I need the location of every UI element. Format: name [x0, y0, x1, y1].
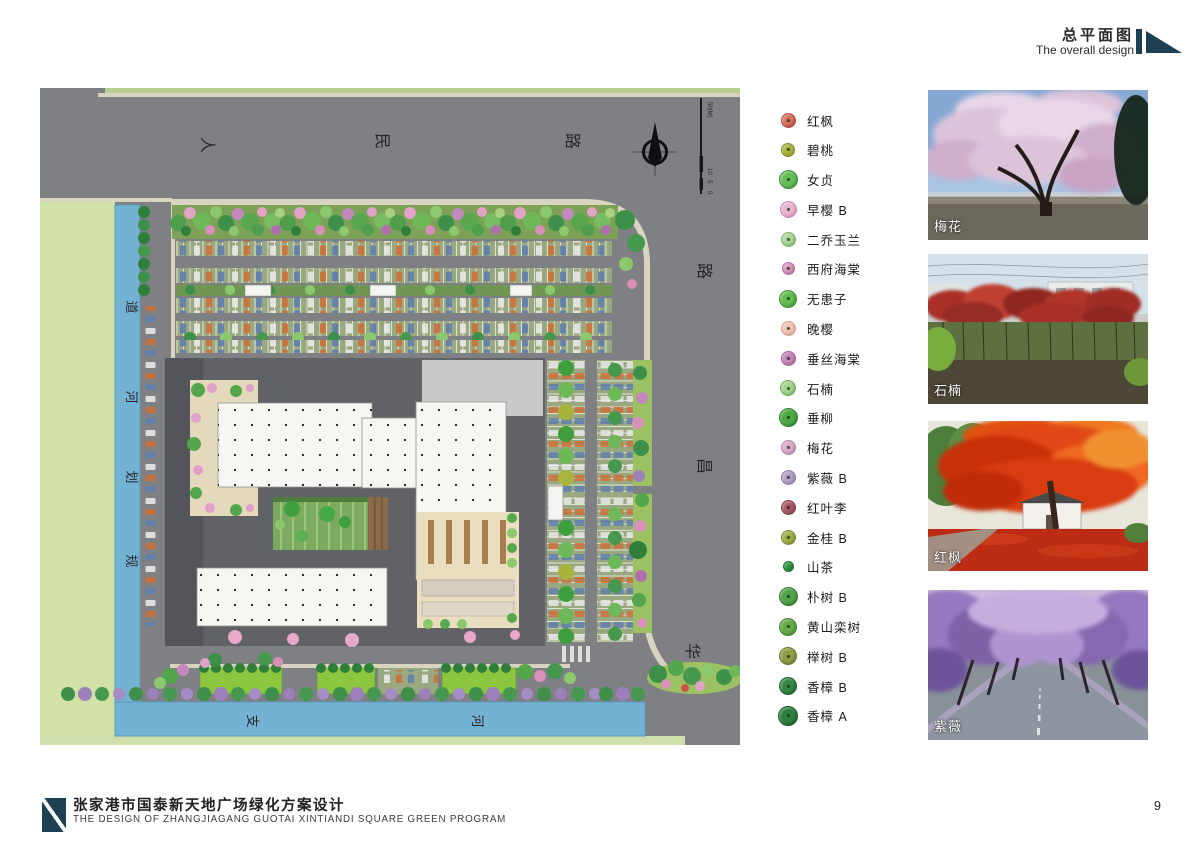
legend-item: 朴树 B [772, 586, 928, 608]
photo-label: 红枫 [934, 547, 962, 566]
legend-swatch-dot [787, 714, 790, 717]
legend-label: 朴树 B [807, 587, 848, 606]
legend-label: 早樱 B [807, 200, 848, 219]
legend-item: 晚樱 [772, 318, 928, 340]
legend-label: 碧桃 [807, 140, 834, 159]
footer-logo-slash [42, 798, 66, 832]
legend-label: 二乔玉兰 [807, 230, 861, 249]
parking-east [547, 360, 658, 644]
project-title-cn: 张家港市国泰新天地广场绿化方案设计 [73, 794, 345, 815]
river-label: 支 [245, 714, 260, 727]
legend-item: 红枫 [772, 109, 928, 131]
legend-label: 金桂 B [807, 528, 848, 547]
legend-list: 红枫碧桃女贞早樱 B二乔玉兰西府海棠无患子晚樱垂丝海棠石楠垂柳梅花紫薇 B红叶李… [772, 109, 928, 727]
legend-item: 碧桃 [772, 139, 928, 161]
legend-item: 西府海棠 [772, 258, 928, 280]
legend-item: 金桂 B [772, 526, 928, 548]
header-logo-triangle-icon [1146, 31, 1182, 53]
page-title-cn: 总平面图 [1062, 24, 1134, 45]
photo-label: 石楠 [934, 380, 962, 399]
legend-swatch-dot [787, 595, 790, 598]
road-label: 路 [563, 133, 581, 149]
legend-label: 红枫 [807, 111, 834, 130]
legend-item: 早樱 B [772, 198, 928, 220]
legend-tree-swatch [781, 440, 796, 455]
site-plan: 50(M) 10 5 0 人 民 路 路 昌 华 道 河 划 规 支 河 [40, 88, 740, 745]
canal-label: 道 [124, 300, 139, 313]
legend-tree-swatch [779, 170, 798, 189]
legend-item: 无患子 [772, 288, 928, 310]
legend-label: 无患子 [807, 289, 848, 308]
legend-tree-swatch [781, 321, 796, 336]
scale-tick: 10 [706, 168, 712, 175]
legend-label: 香樟 A [807, 706, 848, 725]
legend-tree-swatch [779, 587, 798, 606]
photo-label: 梅花 [934, 216, 962, 235]
legend-swatch-dot [787, 357, 790, 360]
legend-tree-swatch [778, 706, 798, 726]
legend-tree-swatch [780, 201, 797, 218]
photo-label: 紫薇 [934, 716, 962, 735]
legend-tree-swatch [781, 143, 795, 157]
canal-label: 河 [124, 390, 139, 403]
legend-label: 石楠 [807, 379, 834, 398]
legend-tree-swatch [779, 408, 798, 427]
legend-tree-swatch [779, 677, 797, 695]
road-label: 昌 [695, 458, 712, 474]
legend-swatch-dot [787, 208, 790, 211]
legend-swatch-dot [787, 476, 790, 479]
page-title-en: The overall design [1036, 43, 1134, 57]
legend-label: 山茶 [807, 557, 834, 576]
legend-tree-swatch [781, 500, 796, 515]
legend-item: 石楠 [772, 377, 928, 399]
legend-item: 垂柳 [772, 407, 928, 429]
road-label: 民 [373, 133, 390, 149]
buildings [165, 358, 545, 647]
site-plan-svg: 50(M) 10 5 0 人 民 路 路 昌 华 道 河 划 规 支 河 [40, 88, 740, 745]
legend-swatch-dot [787, 297, 790, 300]
courtyard-southeast [417, 512, 519, 629]
plant-photo-shinan: 石楠 [928, 254, 1148, 404]
legend-tree-swatch [781, 351, 796, 366]
legend-item: 榉树 B [772, 645, 928, 667]
road-label: 路 [695, 263, 713, 279]
legend-tree-swatch [779, 618, 797, 636]
legend-swatch-dot [787, 267, 790, 270]
legend-item: 二乔玉兰 [772, 228, 928, 250]
legend-swatch-dot [787, 625, 790, 628]
road-label: 人 [198, 137, 216, 153]
page: 总平面图 The overall design [0, 0, 1191, 842]
legend-label: 西府海棠 [807, 259, 861, 278]
header-logo-bar [1136, 29, 1142, 54]
legend-item: 女贞 [772, 169, 928, 191]
legend-item: 山茶 [772, 556, 928, 578]
legend-label: 榉树 B [807, 647, 848, 666]
legend-swatch-dot [787, 178, 790, 181]
legend-tree-swatch [781, 232, 796, 247]
page-number: 9 [1154, 799, 1161, 813]
south-river [40, 702, 685, 745]
river [115, 702, 645, 736]
legend-swatch-dot [787, 119, 790, 122]
legend-item: 香樟 A [772, 705, 928, 727]
parking-north [170, 205, 645, 353]
legend-swatch-dot [787, 387, 790, 390]
footer-logo-icon [42, 798, 66, 832]
legend-item: 香樟 B [772, 675, 928, 697]
legend-label: 女贞 [807, 170, 834, 189]
legend-item: 红叶李 [772, 496, 928, 518]
legend-tree-swatch [783, 561, 794, 572]
legend-swatch-dot [787, 238, 790, 241]
legend-label: 梅花 [807, 438, 834, 457]
legend-label: 香樟 B [807, 677, 848, 696]
canal-label: 划 [124, 470, 139, 483]
legend-tree-swatch [779, 647, 797, 665]
legend-tree-swatch [782, 262, 795, 275]
legend-tree-swatch [780, 380, 796, 396]
legend-swatch-dot [787, 416, 790, 419]
legend-swatch-dot [787, 148, 790, 151]
legend-tree-swatch [781, 470, 796, 485]
legend-swatch-dot [787, 446, 790, 449]
river-label: 河 [470, 714, 485, 727]
project-title-en: THE DESIGN OF ZHANGJIAGANG GUOTAI XINTIA… [73, 814, 506, 825]
legend-swatch-dot [787, 685, 790, 688]
legend-tree-swatch [781, 113, 796, 128]
legend-swatch-dot [787, 536, 790, 539]
legend-label: 红叶李 [807, 498, 848, 517]
legend-item: 垂丝海棠 [772, 347, 928, 369]
legend-item: 黄山栾树 [772, 616, 928, 638]
plant-photo-ziwei: 紫薇 [928, 590, 1148, 740]
legend-item: 梅花 [772, 437, 928, 459]
scale-tick: 50(M) [706, 102, 712, 118]
legend-item: 紫薇 B [772, 467, 928, 489]
legend-label: 紫薇 B [807, 468, 848, 487]
plant-photo-hongfeng: 红枫 [928, 421, 1148, 571]
legend-swatch-dot [787, 327, 790, 330]
legend-tree-swatch [779, 290, 797, 308]
road-label: 华 [683, 643, 701, 659]
legend-swatch-dot [787, 506, 790, 509]
legend-tree-swatch [781, 530, 796, 545]
legend-swatch-dot [787, 655, 790, 658]
legend-label: 垂柳 [807, 408, 834, 427]
courtyard-center [273, 497, 388, 550]
legend-label: 垂丝海棠 [807, 349, 861, 368]
plant-photo-meihua: 梅花 [928, 90, 1148, 240]
legend-label: 黄山栾树 [807, 617, 861, 636]
legend-label: 晚樱 [807, 319, 834, 338]
canal-label: 规 [124, 554, 139, 567]
